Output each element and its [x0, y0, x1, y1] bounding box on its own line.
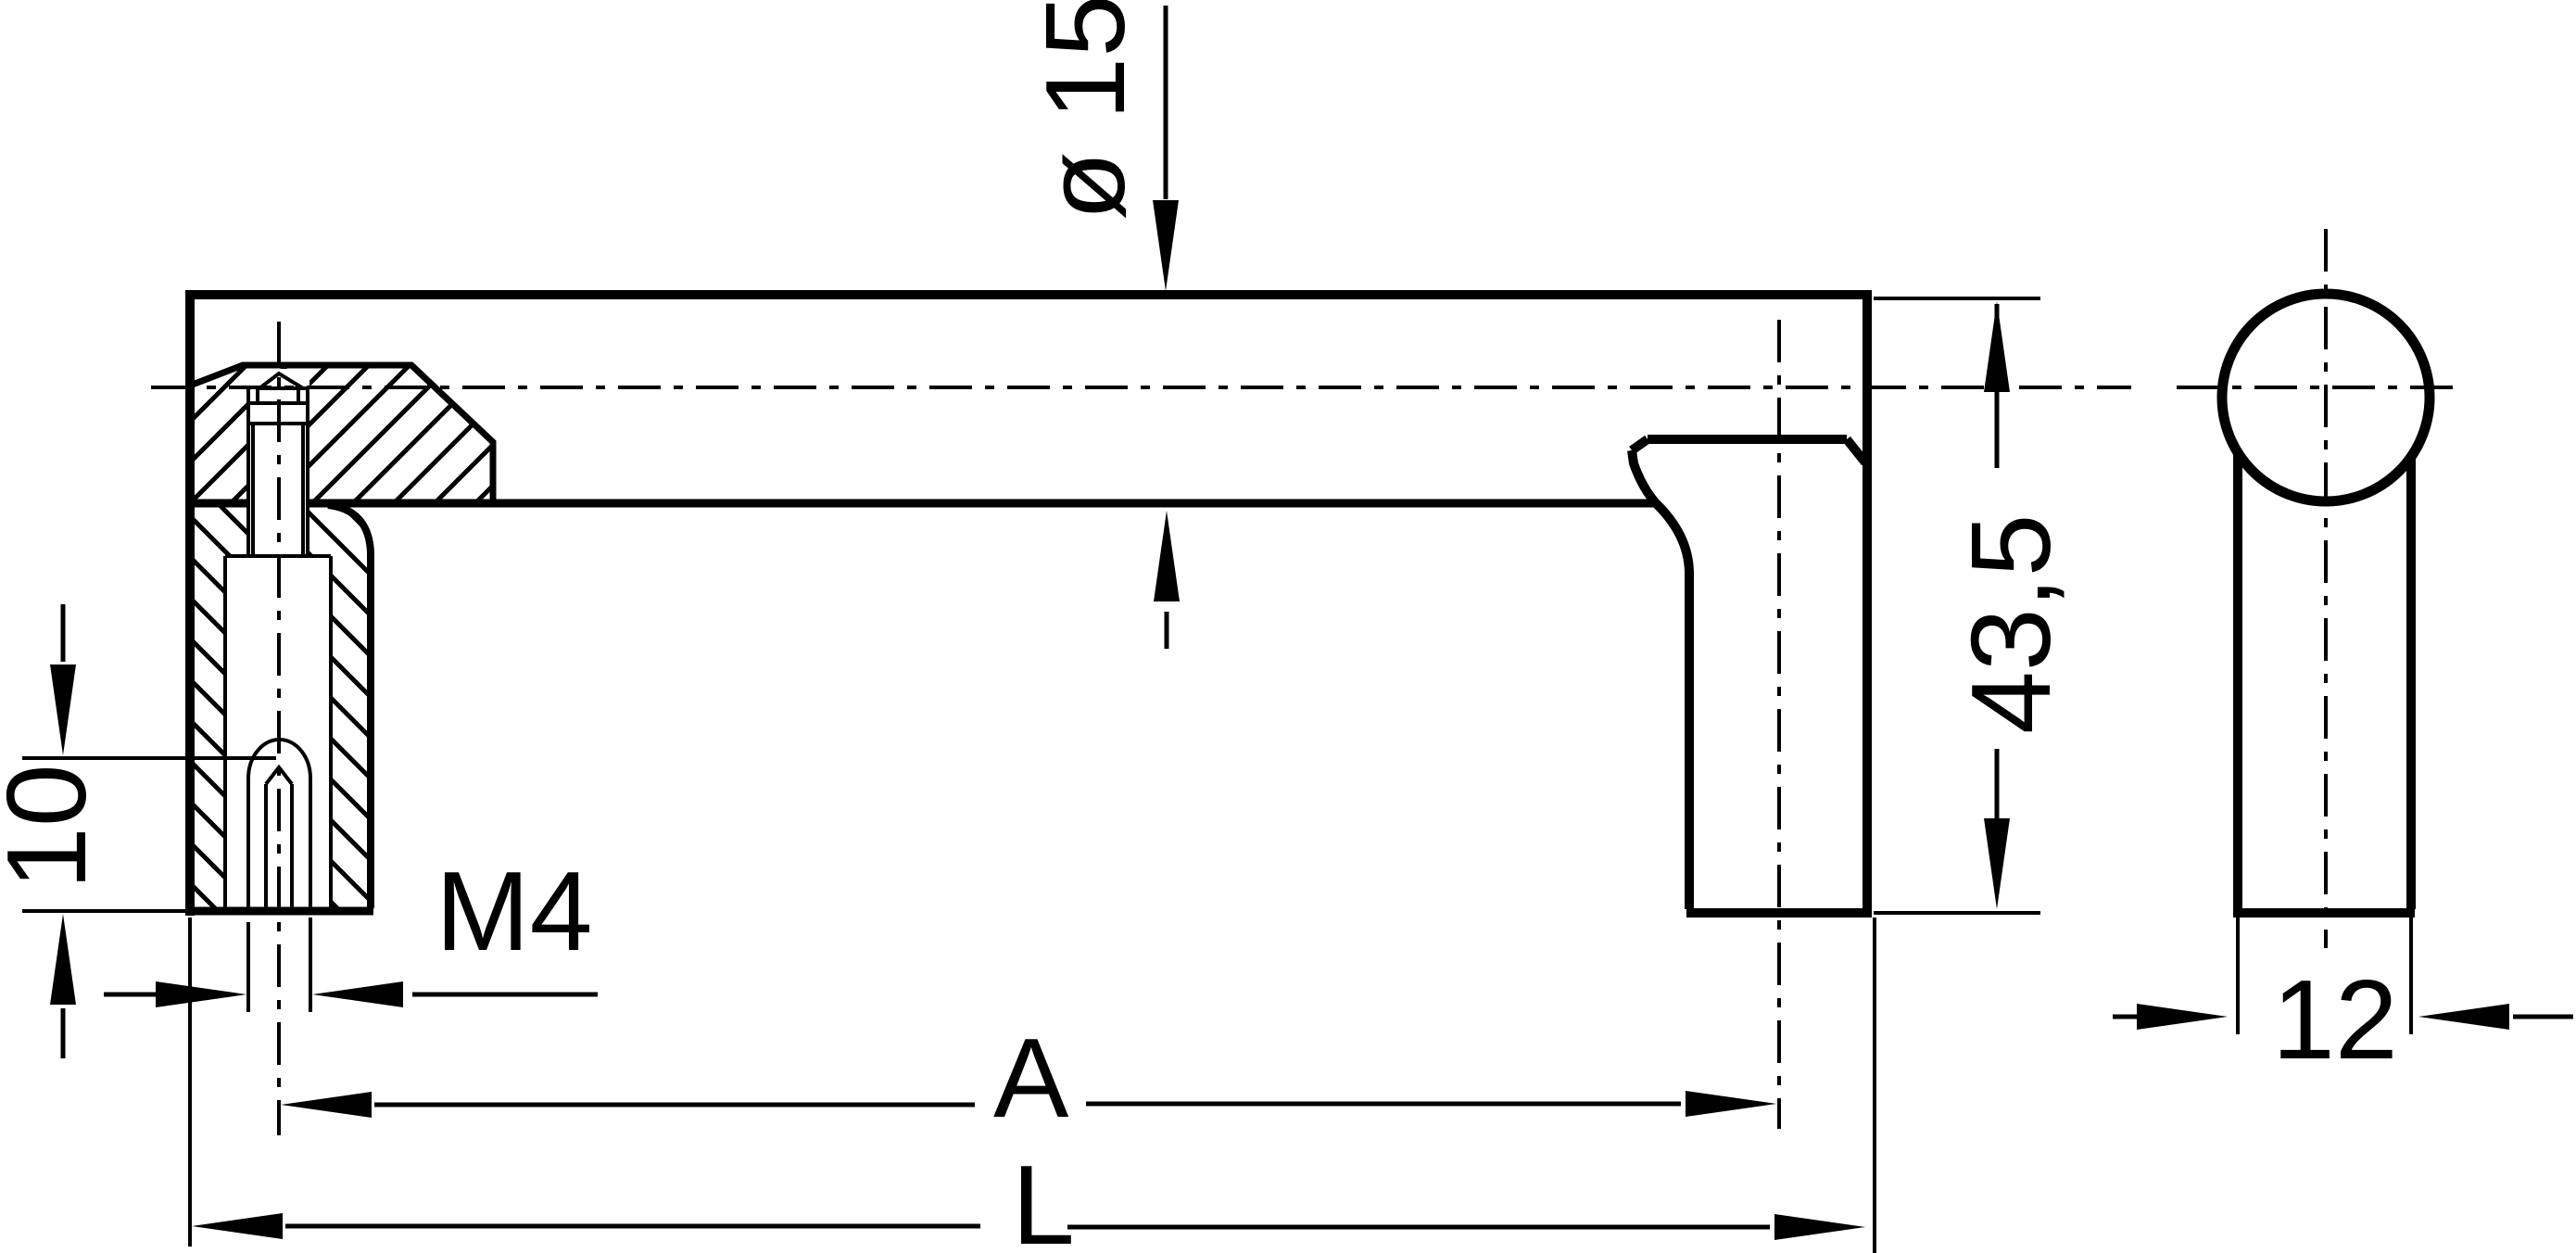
- dim-label-height: 43,5: [1948, 514, 2074, 734]
- dim-label-side-width: 12: [2272, 956, 2398, 1082]
- dim-label-diameter: ø 15: [1022, 0, 1148, 221]
- background: [0, 0, 2576, 1253]
- technical-drawing: ø 15 43,5 10: [0, 0, 2576, 1253]
- drawing-canvas: ø 15 43,5 10: [0, 0, 2576, 1253]
- dim-label-hole-spacing: A: [993, 1015, 1069, 1141]
- dim-label-depth: 10: [0, 764, 109, 890]
- dim-label-overall-length: L: [1012, 1142, 1075, 1253]
- dim-label-thread: M4: [436, 848, 592, 974]
